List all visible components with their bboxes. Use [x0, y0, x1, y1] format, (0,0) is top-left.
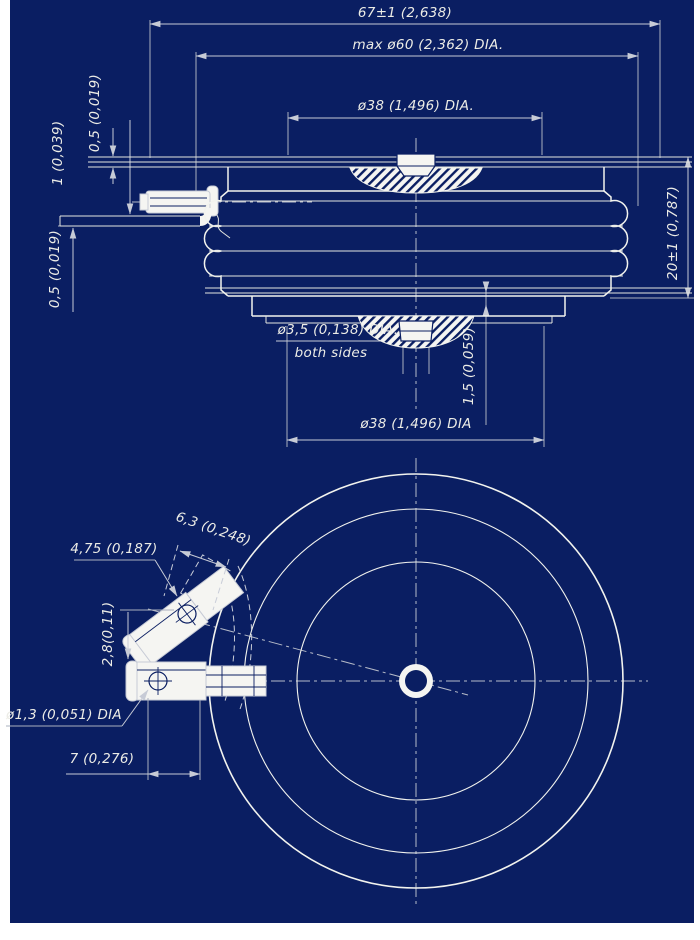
- dim-gate-lead-thickness: 1 (0,039): [50, 121, 66, 186]
- dim-bottom-pole-dia: ø38 (1,496) DIA: [359, 416, 471, 432]
- center-socket: [397, 154, 435, 176]
- engineering-drawing: 67±1 (2,638) max ø60 (2,362) DIA. ø38 (1…: [0, 0, 700, 940]
- dim-lead-distance: 7 (0,276): [70, 751, 135, 767]
- dim-height: 20±1 (0,787): [665, 186, 681, 280]
- dim-top-strap-thickness: 0,5 (0,019): [87, 74, 103, 152]
- dim-overall-width: 67±1 (2,638): [358, 5, 452, 21]
- dim-recess-depth: 1,5 (0,059): [461, 327, 477, 405]
- dim-lead-offset: 2,8(0,11): [100, 602, 116, 667]
- note-both-sides: both sides: [295, 345, 368, 361]
- dim-max-dia: max ø60 (2,362) DIA.: [352, 37, 503, 53]
- dim-top-pole-dia: ø38 (1,496) DIA.: [357, 98, 474, 114]
- dim-lead-hole-dia: ø1,3 (0,051) DIA: [5, 707, 122, 723]
- dim-bottom-strap-thickness: 0,5 (0,019): [47, 230, 63, 308]
- dim-center-hole-dia: ø3,5 (0,138) DIA.: [277, 322, 399, 338]
- gate-connector-horizontal: [126, 661, 266, 701]
- dim-tab-width: 4,75 (0,187): [70, 541, 157, 557]
- blueprint-page: 67±1 (2,638) max ø60 (2,362) DIA. ø38 (1…: [0, 0, 700, 940]
